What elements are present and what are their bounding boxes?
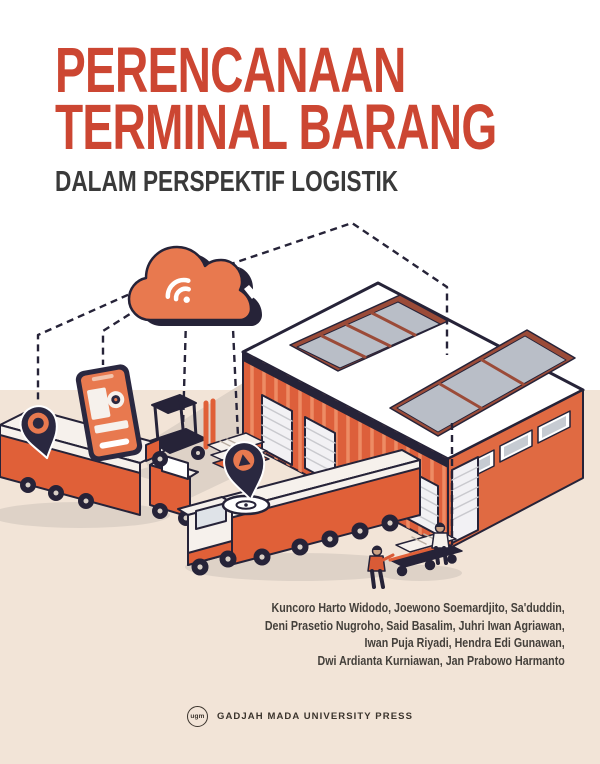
author-line: Kuncoro Harto Widodo, Joewono Soemardjit… [265, 599, 565, 617]
ugm-logo-text: ugm [190, 713, 204, 720]
roller-door-right [452, 457, 478, 543]
publisher-name: GADJAH MADA UNIVERSITY PRESS [217, 711, 413, 722]
subtitle: DALAM PERSPEKTIF LOGISTIK [55, 166, 398, 199]
author-line: Dwi Ardianta Kurniawan, Jan Prabowo Harm… [265, 652, 565, 670]
cover-illustration [0, 215, 600, 605]
cloud-icon [129, 247, 262, 326]
book-cover: PERENCANAAN TERMINAL BARANG DALAM PERSPE… [0, 0, 600, 764]
ugm-logo: ugm [187, 706, 208, 727]
page-title-line2: TERMINAL BARANG [55, 99, 496, 156]
author-line: Deni Prasetio Nugroho, Said Basalim, Juh… [265, 617, 565, 635]
gps-target-center [223, 496, 269, 514]
authors-block: Kuncoro Harto Widodo, Joewono Soemardjit… [265, 599, 565, 669]
forklift-roof [152, 395, 196, 413]
publisher-block: ugm GADJAH MADA UNIVERSITY PRESS [0, 706, 600, 727]
title-block: PERENCANAAN TERMINAL BARANG [55, 42, 600, 156]
author-line: Iwan Puja Riyadi, Hendra Edi Gunawan, [265, 634, 565, 652]
